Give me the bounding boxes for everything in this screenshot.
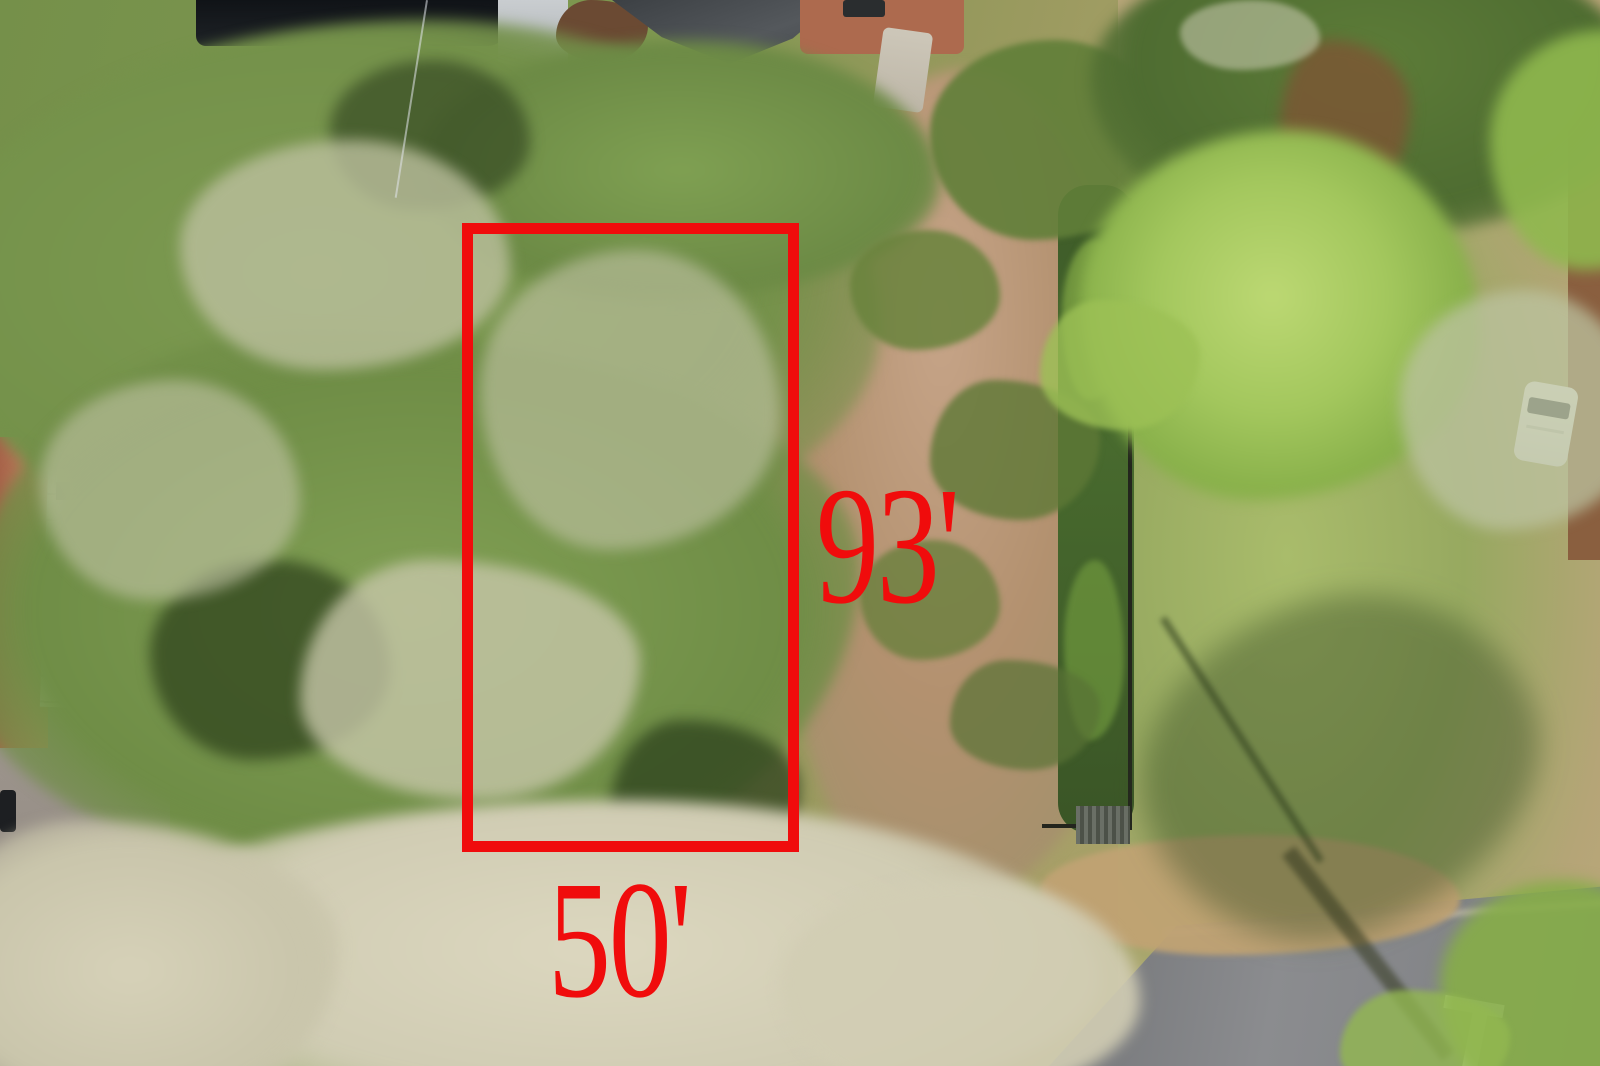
aerial-photo: 93' 50'	[0, 0, 1600, 1066]
field-shrub-1	[850, 230, 1000, 350]
dimension-label-side: 93'	[816, 462, 958, 630]
moss-streak-top-right	[1180, 0, 1320, 70]
dimension-label-front: 50'	[548, 856, 690, 1024]
grill-on-patio	[843, 0, 885, 17]
fence-gate	[1076, 806, 1130, 844]
parked-car-partial	[0, 790, 16, 832]
moss-patch-4	[40, 380, 300, 600]
moss-patch-1	[180, 140, 510, 370]
property-boundary	[462, 223, 799, 852]
